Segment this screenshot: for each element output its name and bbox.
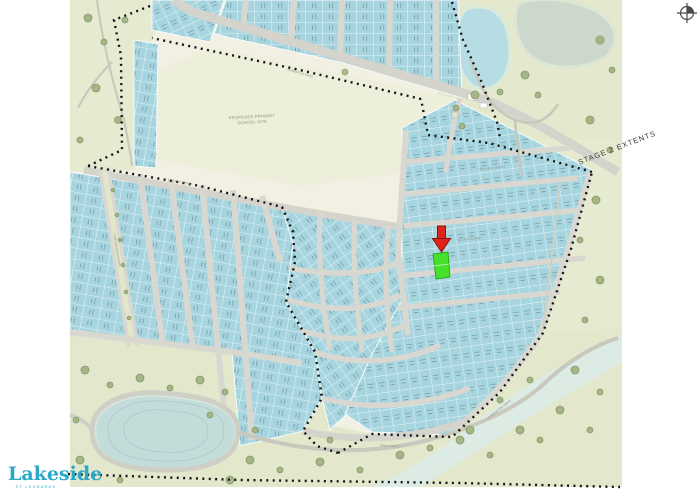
logo-wordmark: Lakeside <box>8 463 102 485</box>
pond-north <box>456 7 510 89</box>
lake <box>95 396 236 471</box>
masterplan-page: PROPOSED PRIMARY SCHOOL SITE STAGE 2 EXT… <box>0 0 700 500</box>
block-west-column <box>134 40 158 168</box>
logo-tagline: · ST LEONARDS · <box>11 485 62 489</box>
estate-map: PROPOSED PRIMARY SCHOOL SITE STAGE 2 EXT… <box>0 0 700 500</box>
